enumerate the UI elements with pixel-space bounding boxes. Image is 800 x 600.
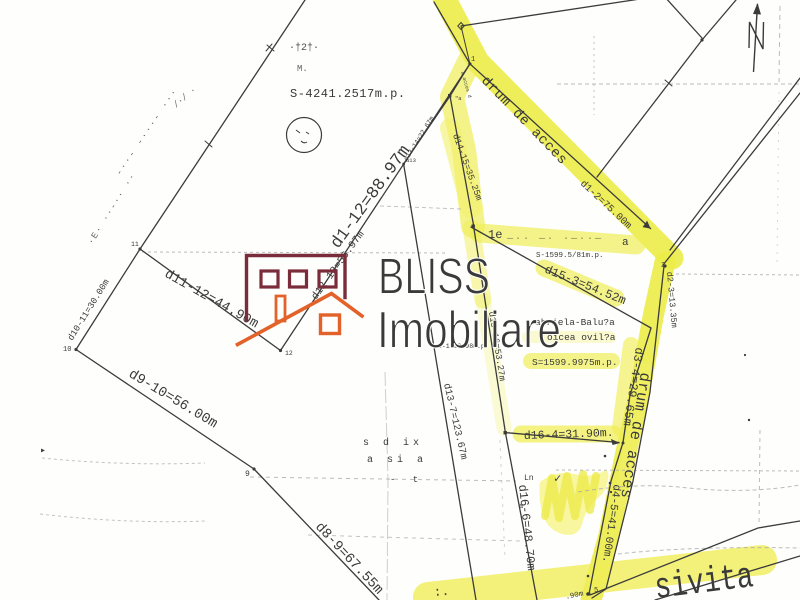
svg-text:BLISS: BLISS bbox=[378, 248, 490, 305]
svg-text:Imobiliare: Imobiliare bbox=[377, 302, 561, 360]
